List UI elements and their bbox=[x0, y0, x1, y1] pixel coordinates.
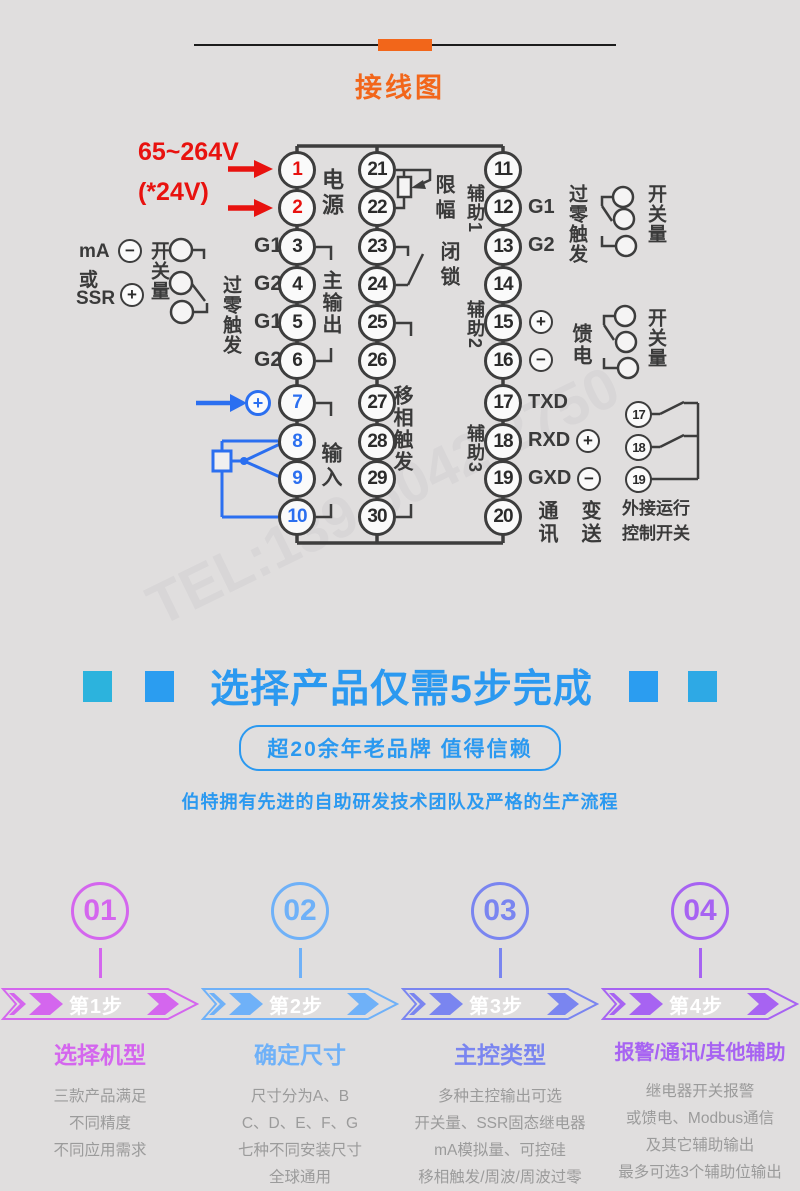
aux2-label: 辅助2 bbox=[462, 300, 488, 349]
divider-accent-rect bbox=[378, 39, 432, 51]
ssr-label: SSR bbox=[76, 288, 115, 310]
brand-badge: 超20余年老品牌 值得信赖 bbox=[239, 725, 560, 771]
rxd-plus-icon: + bbox=[576, 429, 600, 453]
terminal-7: 7 bbox=[278, 384, 316, 422]
rightA-contact-blade bbox=[602, 206, 612, 221]
ext-terminal-18: 18 bbox=[625, 434, 652, 461]
step-connector-line bbox=[499, 948, 502, 978]
feed-minus-icon: − bbox=[529, 348, 553, 372]
ext-terminal-19: 19 bbox=[625, 466, 652, 493]
switch-qty-rightA-label: 开关量 bbox=[642, 184, 669, 244]
voltage-main-label: 65~264V bbox=[138, 138, 239, 167]
left-contact-blade bbox=[192, 284, 205, 301]
contact-circle bbox=[170, 239, 192, 261]
aux1-label: 辅助1 bbox=[462, 184, 488, 233]
step-3: 03 第3步 主控类型 多种主控输出可选 开关量、SSR固态继电器 mA模拟量、… bbox=[400, 878, 600, 1191]
desc-line: C、D、E、F、G bbox=[238, 1110, 362, 1137]
ma-label: mA bbox=[79, 241, 110, 263]
terminal-30: 30 bbox=[358, 498, 396, 536]
limiter-resistor bbox=[398, 177, 411, 197]
wiring-diagram: TEL:139 6042 2750 bbox=[0, 120, 800, 600]
terminal-17: 17 bbox=[484, 384, 522, 422]
section-promo: 选择产品仅需5步完成 超20余年老品牌 值得信赖 伯特拥有先进的自助研发技术团队… bbox=[0, 660, 800, 814]
terminal-10: 10 bbox=[278, 498, 316, 536]
terminal-26: 26 bbox=[358, 342, 396, 380]
desc-line: 继电器开关报警 bbox=[618, 1078, 782, 1105]
terminal-3: 3 bbox=[278, 228, 316, 266]
terminal-21: 21 bbox=[358, 151, 396, 189]
terminal-15: 15 bbox=[484, 304, 522, 342]
txd-label: TXD bbox=[528, 391, 568, 414]
g2-label-t6: G2 bbox=[240, 348, 282, 372]
step-title: 报警/通讯/其他辅助 bbox=[614, 1036, 785, 1065]
terminal-16: 16 bbox=[484, 342, 522, 380]
power-arrow-head bbox=[254, 199, 273, 217]
step-connector-line bbox=[299, 948, 302, 978]
step-number-badge: 04 bbox=[671, 882, 729, 940]
step-4: 04 第4步 报警/通讯/其他辅助 继电器开关报警 或馈电、Modbus通信 及… bbox=[600, 878, 800, 1191]
rightB-contact-blade bbox=[604, 325, 614, 340]
terminal-1: 1 bbox=[278, 151, 316, 189]
terminal-9: 9 bbox=[278, 460, 316, 498]
step-connector-line bbox=[99, 948, 102, 978]
desc-line: 多种主控输出可选 bbox=[414, 1083, 585, 1110]
terminal-18: 18 bbox=[484, 423, 522, 461]
g1-label-t5: G1 bbox=[240, 310, 282, 334]
terminal-20: 20 bbox=[484, 498, 522, 536]
transmit-label: 变送 bbox=[575, 500, 604, 546]
terminal-5: 5 bbox=[278, 304, 316, 342]
step-banner-label: 第2步 bbox=[201, 988, 391, 1020]
minus-terminal-icon: − bbox=[118, 239, 142, 263]
feed-label: 馈电 bbox=[566, 323, 595, 367]
step-description: 继电器开关报警 或馈电、Modbus通信 及其它辅助输出 最多可选3个辅助位输出 bbox=[618, 1078, 782, 1186]
limiter-arrowhead bbox=[411, 180, 426, 189]
contact-circle bbox=[618, 358, 638, 378]
step-banner-label: 第4步 bbox=[601, 988, 791, 1020]
desc-line: 最多可选3个辅助位输出 bbox=[618, 1159, 782, 1186]
rxd-label: RXD bbox=[528, 429, 570, 452]
section-header: 接线图 bbox=[0, 0, 800, 110]
terminal-24: 24 bbox=[358, 266, 396, 304]
ext-terminal-17: 17 bbox=[625, 401, 652, 428]
section-steps: 01 第1步 选择机型 三款产品满足 不同精度 不同应用需求 02 bbox=[0, 878, 800, 1191]
terminal-19: 19 bbox=[484, 460, 522, 498]
step-title: 主控类型 bbox=[454, 1036, 546, 1070]
g1-label-t12: G1 bbox=[528, 196, 555, 219]
step-title: 选择机型 bbox=[54, 1036, 146, 1070]
feed-plus-icon: + bbox=[529, 310, 553, 334]
desc-line: 七种不同安装尺寸 bbox=[238, 1137, 362, 1164]
deco-square-icon bbox=[145, 671, 174, 702]
terminal-22: 22 bbox=[358, 189, 396, 227]
promo-title: 选择产品仅需5步完成 bbox=[210, 658, 593, 714]
aux3-label: 辅助3 bbox=[462, 424, 488, 473]
ext-switch-blades bbox=[660, 402, 684, 447]
promo-title-row: 选择产品仅需5步完成 bbox=[0, 660, 800, 712]
desc-line: 或馈电、Modbus通信 bbox=[618, 1105, 782, 1132]
terminal-2: 2 bbox=[278, 189, 316, 227]
step-number-badge: 02 bbox=[271, 882, 329, 940]
step-description: 多种主控输出可选 开关量、SSR固态继电器 mA模拟量、可控硅 移相触发/周波/… bbox=[414, 1083, 585, 1191]
power-arrow-shafts bbox=[228, 169, 254, 208]
step-number-badge: 03 bbox=[471, 882, 529, 940]
desc-line: 移相触发/周波/周波过零 bbox=[414, 1164, 585, 1191]
zero-cross-left-label: 过零触发 bbox=[217, 275, 244, 355]
latch-label: 闭锁 bbox=[434, 241, 463, 291]
page-title: 接线图 bbox=[0, 66, 800, 105]
contact-circle bbox=[616, 236, 636, 256]
step-banner: 第1步 bbox=[1, 988, 199, 1020]
input-label: 输入 bbox=[315, 442, 345, 490]
deco-square-icon bbox=[629, 671, 658, 702]
deco-square-icon bbox=[83, 671, 112, 702]
desc-line: 尺寸分为A、B bbox=[238, 1083, 362, 1110]
input-sensor-body bbox=[213, 451, 231, 471]
terminal-4: 4 bbox=[278, 266, 316, 304]
step-banner: 第4步 bbox=[601, 988, 799, 1020]
main-output-label: 主输出 bbox=[316, 270, 345, 336]
input-sensor-v bbox=[244, 444, 280, 477]
desc-line: 三款产品满足 bbox=[53, 1083, 146, 1110]
terminal-8: 8 bbox=[278, 423, 316, 461]
power-label: 电源 bbox=[315, 168, 347, 218]
contact-circle bbox=[613, 187, 633, 207]
terminal-14: 14 bbox=[484, 266, 522, 304]
desc-line: 全球通用 bbox=[238, 1164, 362, 1191]
step-title: 确定尺寸 bbox=[254, 1036, 346, 1070]
desc-line: 不同精度 bbox=[53, 1110, 146, 1137]
contact-circle bbox=[615, 306, 635, 326]
phase-shift-label: 移相触发 bbox=[387, 385, 416, 473]
ext-switch-label-line1: 外接运行 bbox=[598, 494, 714, 519]
gxd-minus-icon: − bbox=[577, 467, 601, 491]
terminal-12: 12 bbox=[484, 189, 522, 227]
desc-line: 开关量、SSR固态继电器 bbox=[414, 1110, 585, 1137]
comm-label: 通讯 bbox=[532, 500, 561, 546]
desc-line: mA模拟量、可控硅 bbox=[414, 1137, 585, 1164]
terminal-11: 11 bbox=[484, 151, 522, 189]
plus-terminal-icon: + bbox=[120, 283, 144, 307]
zero-cross-right-label: 过零触发 bbox=[563, 184, 590, 264]
deco-square-icon bbox=[688, 671, 717, 702]
left-contact-wires bbox=[192, 250, 207, 312]
contact-circle bbox=[171, 301, 193, 323]
ext-switch-label-line2: 控制开关 bbox=[598, 519, 714, 544]
step-2: 02 第2步 确定尺寸 尺寸分为A、B C、D、E、F、G 七种不同安装尺寸 全… bbox=[200, 878, 400, 1191]
terminal-13: 13 bbox=[484, 228, 522, 266]
desc-line: 不同应用需求 bbox=[53, 1137, 146, 1164]
step-description: 三款产品满足 不同精度 不同应用需求 bbox=[53, 1083, 146, 1164]
step-connector-line bbox=[699, 948, 702, 978]
terminal-23: 23 bbox=[358, 228, 396, 266]
step-banner-label: 第3步 bbox=[401, 988, 591, 1020]
g2-label-t4: G2 bbox=[240, 272, 282, 296]
power-arrow-head bbox=[254, 160, 273, 178]
latch-wires bbox=[396, 247, 408, 285]
step-banner: 第3步 bbox=[401, 988, 599, 1020]
latch-blade bbox=[408, 254, 423, 285]
step-1: 01 第1步 选择机型 三款产品满足 不同精度 不同应用需求 bbox=[0, 878, 200, 1191]
contact-circle bbox=[170, 272, 192, 294]
g2-label-t13: G2 bbox=[528, 234, 555, 257]
desc-line: 及其它辅助输出 bbox=[618, 1132, 782, 1159]
contact-circle bbox=[614, 209, 634, 229]
gxd-label: GXD bbox=[528, 467, 571, 490]
step-banner: 第2步 bbox=[201, 988, 399, 1020]
step-description: 尺寸分为A、B C、D、E、F、G 七种不同安装尺寸 全球通用 bbox=[238, 1083, 362, 1191]
step-number-badge: 01 bbox=[71, 882, 129, 940]
switch-qty-left-label: 开关量 bbox=[145, 241, 172, 301]
terminal-25: 25 bbox=[358, 304, 396, 342]
promo-subtitle: 伯特拥有先进的自助研发技术团队及严格的生产流程 bbox=[0, 788, 800, 814]
terminal-6: 6 bbox=[278, 342, 316, 380]
input-plus-icon: + bbox=[245, 390, 271, 416]
g1-label-t3: G1 bbox=[240, 234, 282, 258]
limit-label: 限幅 bbox=[429, 174, 458, 224]
step-banner-label: 第1步 bbox=[1, 988, 191, 1020]
contact-circle bbox=[616, 332, 636, 352]
voltage-alt-label: (*24V) bbox=[138, 178, 209, 207]
input-sensor-junction bbox=[240, 457, 248, 465]
switch-qty-rightB-label: 开关量 bbox=[642, 308, 669, 368]
